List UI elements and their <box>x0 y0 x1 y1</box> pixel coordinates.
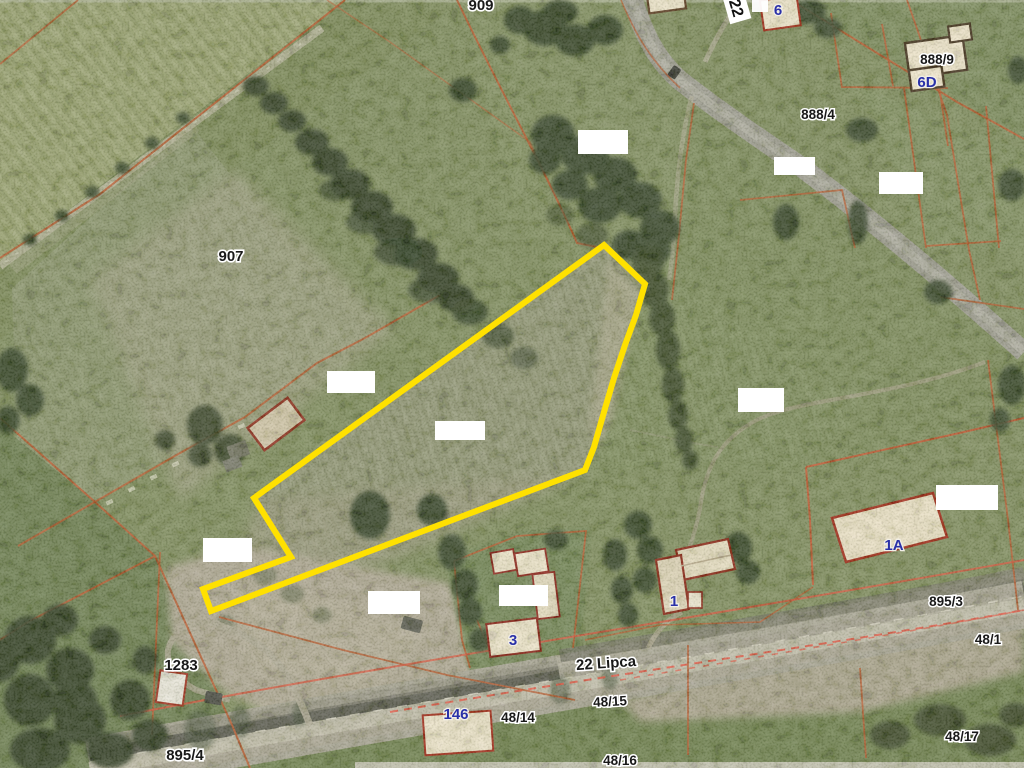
svg-text:888/9: 888/9 <box>920 52 954 67</box>
svg-text:1: 1 <box>670 593 678 610</box>
svg-text:48/16: 48/16 <box>603 753 637 768</box>
svg-text:3: 3 <box>509 632 517 649</box>
svg-text:48/17: 48/17 <box>945 729 979 744</box>
svg-text:895/4: 895/4 <box>166 747 204 764</box>
svg-text:895/3: 895/3 <box>929 594 963 609</box>
svg-text:1283: 1283 <box>164 657 197 674</box>
svg-text:6: 6 <box>774 2 782 19</box>
svg-text:6D: 6D <box>917 74 936 91</box>
svg-text:48/14: 48/14 <box>501 710 535 725</box>
svg-text:909: 909 <box>468 0 493 14</box>
svg-text:888/4: 888/4 <box>801 107 835 122</box>
svg-text:48/1: 48/1 <box>975 632 1002 647</box>
svg-text:907: 907 <box>218 248 243 265</box>
svg-text:48/15: 48/15 <box>593 693 628 710</box>
svg-text:146: 146 <box>443 706 468 723</box>
svg-text:1A: 1A <box>884 537 903 554</box>
